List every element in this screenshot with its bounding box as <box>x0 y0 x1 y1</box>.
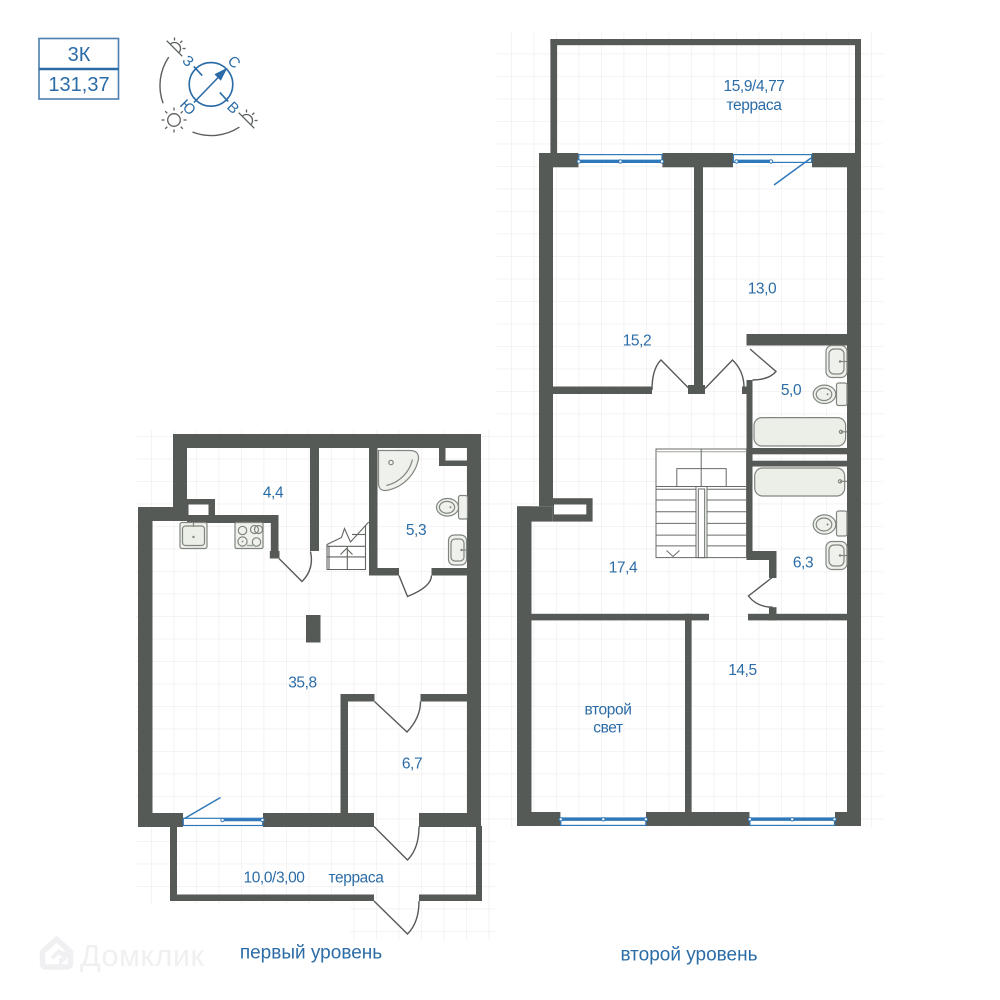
svg-text:Домклик: Домклик <box>80 939 204 973</box>
svg-text:второй уровень: второй уровень <box>620 945 757 966</box>
svg-text:3К: 3К <box>68 44 91 66</box>
svg-text:10,0/3,00: 10,0/3,00 <box>243 870 305 887</box>
svg-text:6,3: 6,3 <box>793 555 813 572</box>
svg-text:второй: второй <box>585 702 632 719</box>
svg-text:4,4: 4,4 <box>263 485 284 502</box>
svg-text:13,0: 13,0 <box>748 281 777 298</box>
svg-text:5,0: 5,0 <box>781 382 802 399</box>
svg-text:терраса: терраса <box>727 97 783 114</box>
svg-text:5,3: 5,3 <box>406 522 426 539</box>
svg-text:6,7: 6,7 <box>402 756 422 773</box>
svg-text:свет: свет <box>593 720 623 737</box>
svg-text:131,37: 131,37 <box>48 74 109 96</box>
svg-text:14,5: 14,5 <box>728 662 757 679</box>
svg-text:17,4: 17,4 <box>609 560 638 577</box>
svg-text:15,2: 15,2 <box>623 333 652 350</box>
svg-text:первый уровень: первый уровень <box>240 943 382 964</box>
svg-text:35,8: 35,8 <box>288 675 317 692</box>
svg-text:15,9/4,77: 15,9/4,77 <box>723 78 784 95</box>
svg-text:терраса: терраса <box>329 870 385 887</box>
